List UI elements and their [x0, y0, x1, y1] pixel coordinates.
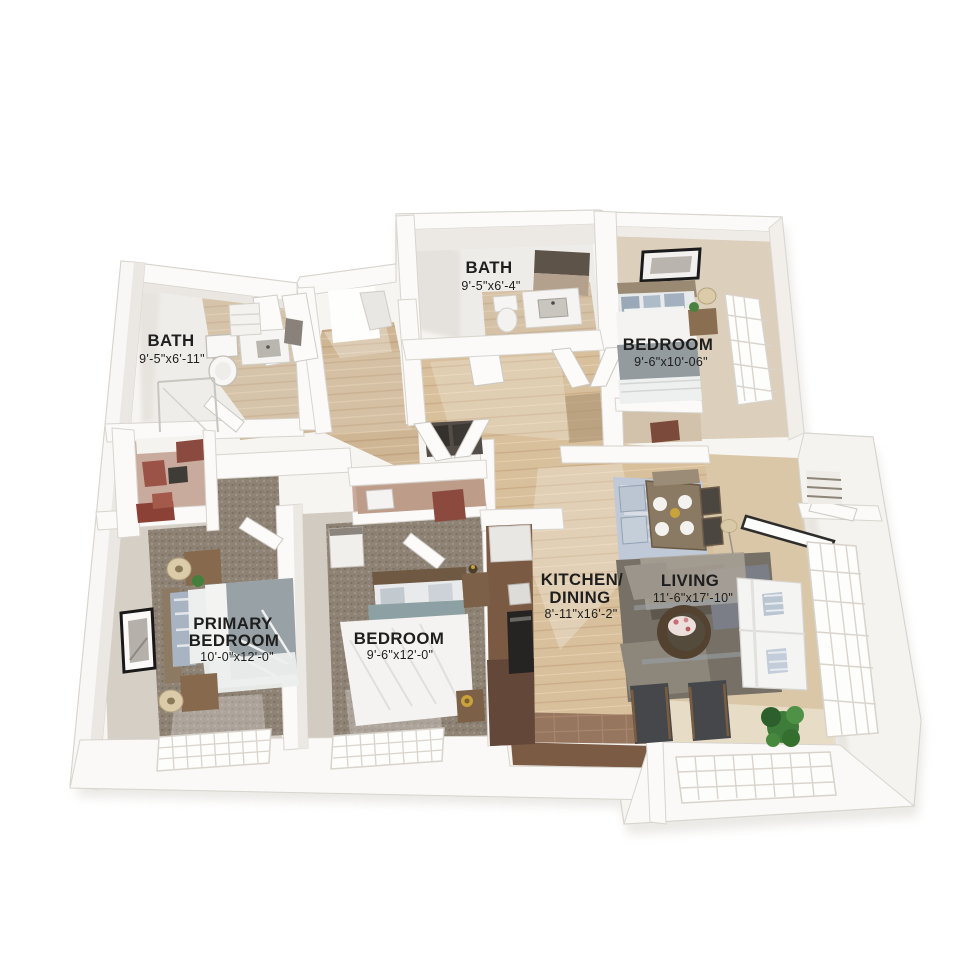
svg-text:BEDROOM: BEDROOM	[189, 631, 279, 650]
svg-text:BEDROOM: BEDROOM	[623, 335, 713, 354]
svg-text:BATH: BATH	[148, 331, 195, 350]
svg-text:LIVING: LIVING	[661, 571, 719, 590]
svg-text:DINING: DINING	[549, 588, 610, 607]
svg-text:9'-6"x12'-0": 9'-6"x12'-0"	[367, 648, 434, 662]
svg-text:11'-6"x17'-10": 11'-6"x17'-10"	[653, 591, 733, 605]
svg-text:BEDROOM: BEDROOM	[354, 629, 444, 648]
svg-text:9'-5"x6'-4": 9'-5"x6'-4"	[461, 279, 520, 293]
svg-text:9'-5"x6'-11": 9'-5"x6'-11"	[139, 352, 205, 366]
svg-text:10'-0"x12'-0": 10'-0"x12'-0"	[200, 650, 274, 664]
svg-text:BATH: BATH	[466, 258, 513, 277]
svg-text:8'-11"x16'-2": 8'-11"x16'-2"	[545, 607, 618, 621]
svg-text:KITCHEN/: KITCHEN/	[541, 570, 623, 589]
svg-text:9'-6"x10'-06": 9'-6"x10'-06"	[634, 355, 708, 369]
